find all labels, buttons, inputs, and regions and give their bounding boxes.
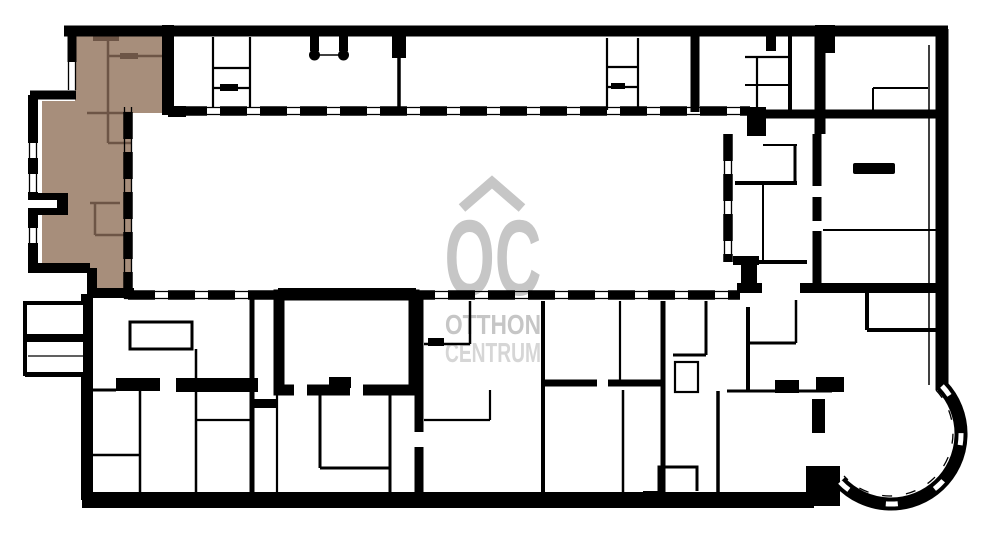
watermark-logo: OC OTTHON CENTRUM (445, 182, 542, 368)
watermark-line1: OTTHON (445, 309, 541, 340)
left-facade-windows (25, 303, 85, 377)
unit-door-threshold (93, 36, 119, 41)
stairwell (279, 295, 414, 396)
kitchen-counter (853, 163, 895, 174)
floor-plan-svg: OC OTTHON CENTRUM (0, 0, 989, 549)
watermark-line2: CENTRUM (445, 337, 541, 368)
floorplan-page: OC OTTHON CENTRUM (0, 0, 989, 549)
unit-window-sill (120, 53, 138, 59)
watermark-initials: OC (445, 197, 542, 318)
